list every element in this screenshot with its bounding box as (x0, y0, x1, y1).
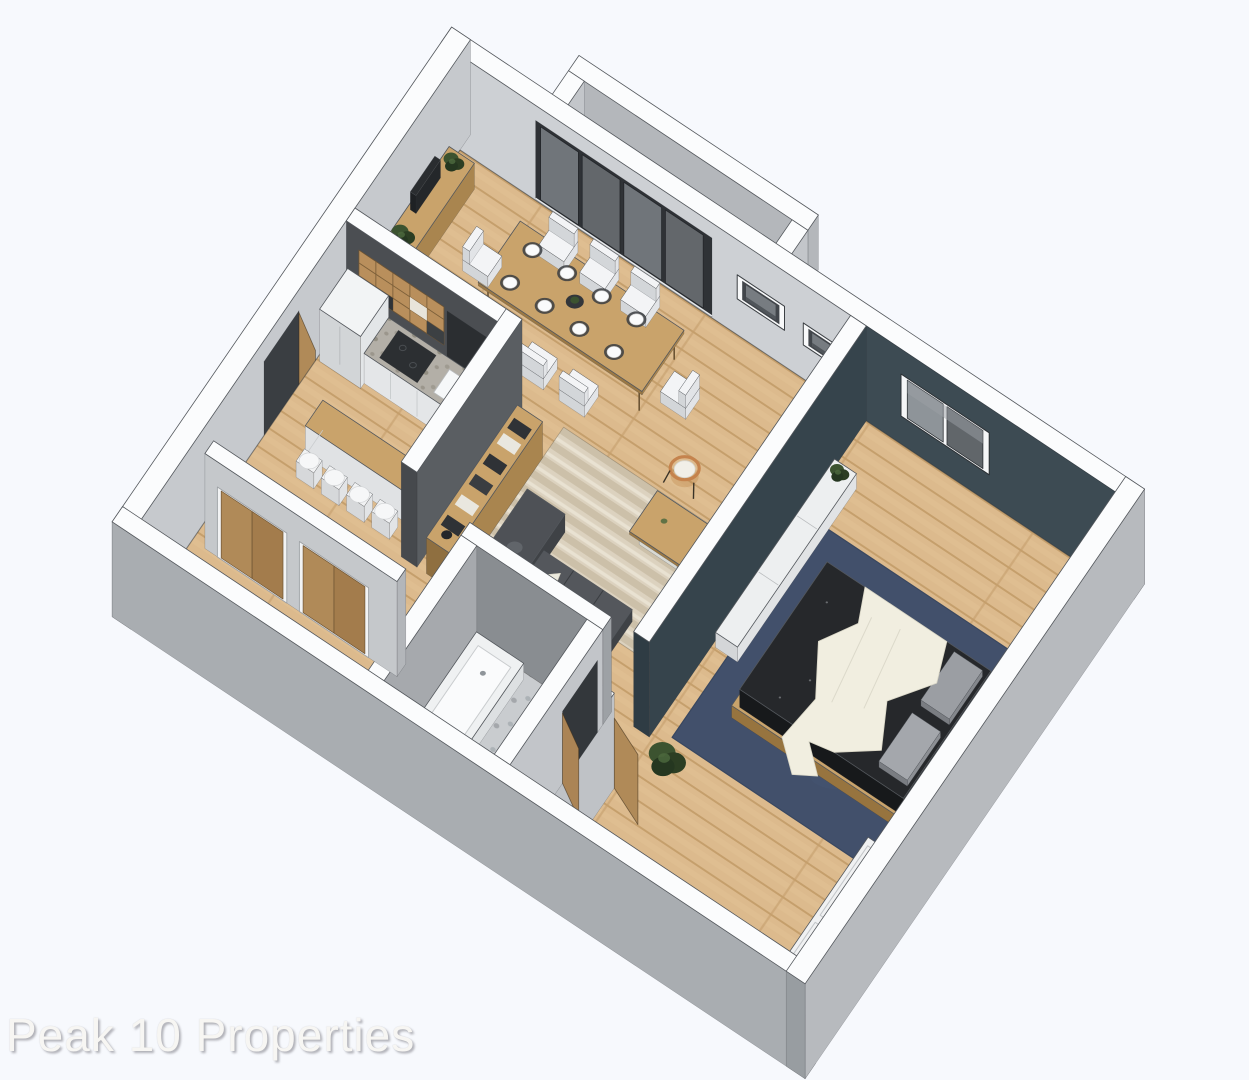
watermark: Peak 10 Properties (6, 1008, 415, 1062)
plate (572, 323, 586, 334)
bathroom-north-wall (603, 617, 612, 725)
plate (560, 268, 574, 279)
plate (629, 314, 643, 325)
plate (607, 346, 621, 357)
plate (503, 277, 517, 288)
bedroom-divider-wall (634, 632, 650, 738)
tub-drain (480, 671, 486, 676)
kitchen-east-wall (401, 462, 417, 568)
plate (525, 244, 539, 255)
plate (538, 300, 552, 311)
floor-plan-render (0, 0, 1249, 1080)
se-exterior-wall (786, 971, 805, 1079)
plate (595, 291, 609, 302)
closet-wall (397, 569, 406, 677)
